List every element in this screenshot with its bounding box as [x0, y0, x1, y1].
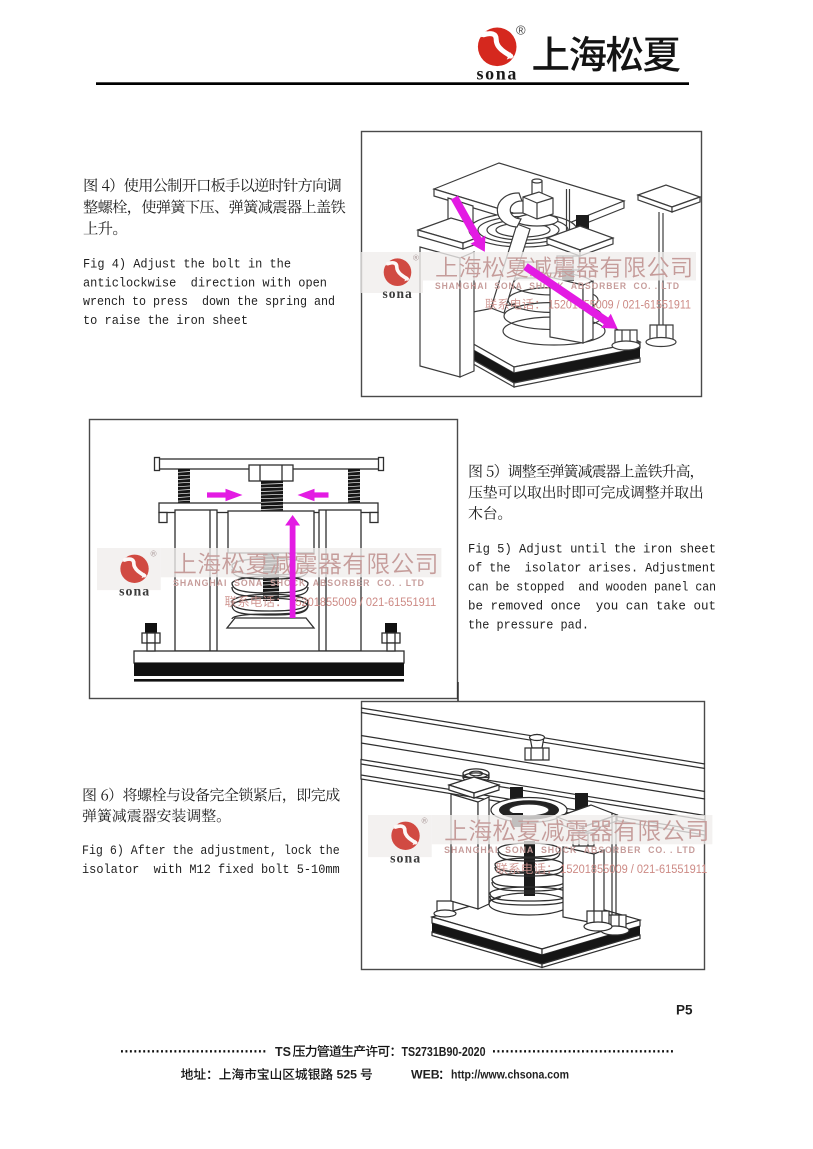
svg-text:isolator with M12 fixed bolt: isolator with M12 fixed bolt 5-10mm: [82, 863, 340, 877]
svg-text:Fig 4) Adjust the bolt in the: Fig 4) Adjust the bolt in the: [83, 258, 291, 272]
svg-text:sona: sona: [119, 584, 150, 599]
svg-text:Fig 5) Adjust until the iron s: Fig 5) Adjust until the iron sheet: [468, 542, 716, 556]
svg-text:wrench to press down the spri: wrench to press down the spring and: [83, 295, 335, 309]
svg-text:sona: sona: [383, 286, 413, 301]
svg-text:can be stopped and wooden pan: can be stopped and wooden panel can: [468, 581, 716, 595]
svg-text:sona: sona: [477, 64, 518, 84]
svg-text:P5: P5: [676, 1002, 693, 1017]
svg-text:®: ®: [150, 550, 156, 559]
svg-text:anticlockwise direction with: anticlockwise direction with open: [83, 276, 327, 290]
svg-text:SHANGHAI SONA SHOCK ABSORBE: SHANGHAI SONA SHOCK ABSORBER CO. . LTD: [173, 578, 425, 589]
svg-text:®: ®: [516, 23, 526, 38]
svg-text:sona: sona: [390, 851, 421, 866]
svg-text:http://www.chsona.com: http://www.chsona.com: [451, 1068, 569, 1082]
svg-text:be removed once you can take: be removed once you can take out: [468, 600, 716, 614]
svg-text:TS2731B90-2020: TS2731B90-2020: [402, 1045, 486, 1059]
svg-text:15201855009 / 021-61551911: 15201855009 / 021-61551911: [289, 595, 436, 609]
svg-text:®: ®: [421, 817, 427, 826]
svg-text:15201855009 / 021-61551911: 15201855009 / 021-61551911: [560, 862, 707, 876]
svg-text:the pressure pad.: the pressure pad.: [468, 619, 589, 633]
svg-text:Fig 6) After the adjustment, l: Fig 6) After the adjustment, lock the: [82, 844, 340, 858]
svg-text:TS: TS: [275, 1045, 291, 1059]
svg-text:to raise the iron sheet: to raise the iron sheet: [83, 314, 248, 328]
svg-text:525: 525: [337, 1068, 358, 1082]
svg-text:of the isolator arises. Adjus: of the isolator arises. Adjustment: [468, 562, 716, 576]
svg-text:®: ®: [413, 254, 419, 263]
svg-text:WEB: WEB: [411, 1068, 440, 1082]
svg-text:SHANGHAI SONA SHOCK ABSORBE: SHANGHAI SONA SHOCK ABSORBER CO. . LTD: [444, 845, 696, 856]
